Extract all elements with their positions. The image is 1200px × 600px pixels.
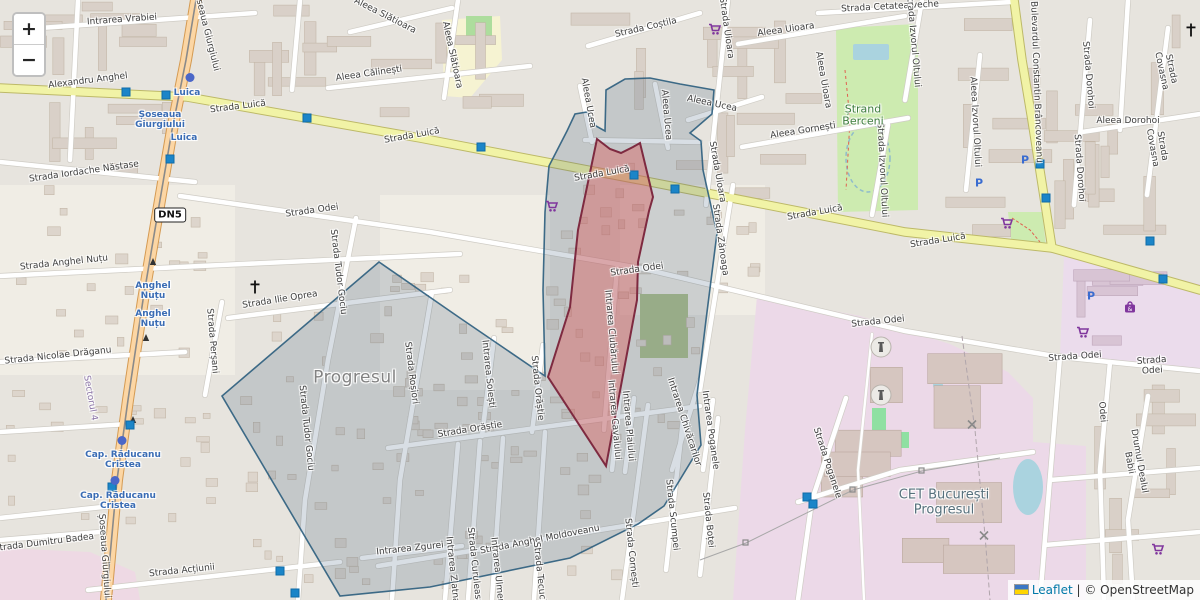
attribution-bar: Leaflet | © OpenStreetMap	[1008, 580, 1200, 600]
map-tiles	[0, 0, 1200, 600]
map-canvas[interactable]: &PPP Intrarea VrabieiAlexandru AnghelȘos…	[0, 0, 1200, 600]
zoom-control: + −	[12, 12, 46, 77]
route-shield-dn5: DN5	[154, 208, 186, 223]
attribution-separator: |	[1073, 583, 1085, 597]
zoom-in-button[interactable]: +	[14, 14, 44, 45]
zoom-out-button[interactable]: −	[14, 45, 44, 75]
ukraine-flag-icon	[1014, 584, 1029, 595]
leaflet-link[interactable]: Leaflet	[1032, 583, 1073, 597]
osm-attribution-link[interactable]: © OpenStreetMap	[1084, 583, 1194, 597]
